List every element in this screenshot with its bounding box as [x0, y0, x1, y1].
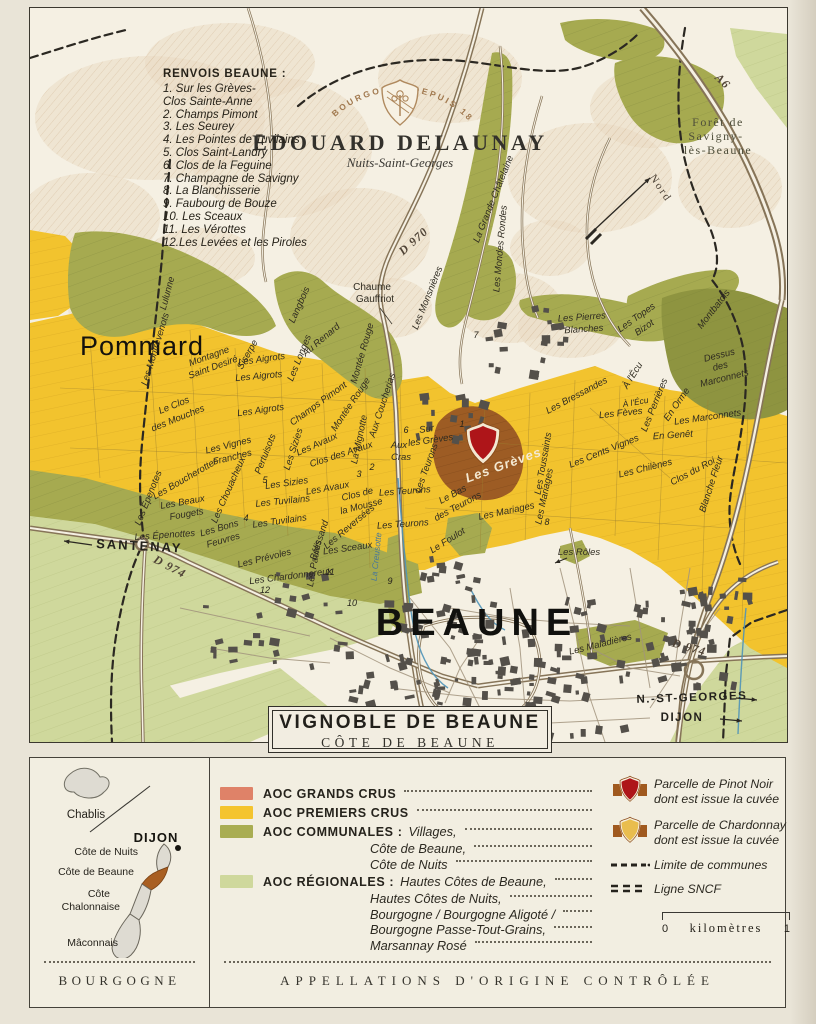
inset-chalonnaise-label: Chalonnaise	[62, 901, 121, 913]
legend-swatch	[220, 875, 253, 888]
map-label: Pommard	[80, 331, 204, 361]
map-label: 9	[387, 576, 392, 586]
renvois-item: 5. Clos Saint-Landry	[163, 147, 363, 160]
renvois-item: 11. Les Vérottes	[163, 224, 363, 237]
inset-cote-de-beaune-label: Côte de Beaune	[58, 866, 134, 878]
legend-sub-row: Côte de Nuits	[220, 857, 598, 873]
maconnais-shape	[112, 914, 140, 958]
brand-crest-icon	[382, 80, 418, 125]
legend-sub-label: Bourgogne Passe-Tout-Grains,	[370, 922, 546, 937]
legend-class-row: AOC PREMIERS CRUS	[220, 803, 598, 822]
map-label: Aux	[390, 440, 409, 451]
map-frame: EN BOURGOGNE DEPUIS 1893 EDOUARD DELAUNA…	[29, 7, 788, 743]
map-label: Forêt de	[692, 115, 744, 129]
renvois-list: RENVOIS BEAUNE : 1. Sur les Grèves-Clos …	[163, 68, 363, 249]
legend-swatch	[220, 825, 253, 838]
renvois-item: Clos Sainte-Anne	[163, 96, 363, 109]
inset-maconnais-label: Mâconnais	[67, 937, 118, 949]
map-label: lès-Beaune	[684, 143, 752, 157]
map-label: 12	[260, 585, 270, 595]
legend-pinot-row: Parcelle de Pinot Noirdont est issue la …	[610, 774, 790, 809]
legend-class-row: AOC COMMUNALES :Villages,	[220, 822, 598, 841]
pinot-crest-icon	[610, 774, 654, 809]
burgundy-inset-map: Chablis DIJON Côte de Nuits Côte de Beau…	[30, 758, 210, 1007]
commune-legend-line: Limite de communes	[654, 858, 767, 873]
legend-box: AOC GRANDS CRUSAOC PREMIERS CRUSAOC COMM…	[210, 758, 785, 1007]
scale-bar-bracket	[662, 912, 790, 920]
scale-unit-label: kilomètres	[690, 921, 763, 936]
legend-sub-label: Marsannay Rosé	[370, 938, 467, 953]
inset-dijon-dot	[175, 845, 181, 851]
legend-sub-row: Bourgogne / Bourgogne Aligoté /	[220, 907, 598, 923]
legend-sub-row: Bourgogne Passe-Tout-Grains,	[220, 922, 598, 938]
legend-sub-row: Hautes Côtes de Nuits,	[220, 891, 598, 907]
renvois-item: 2. Champs Pimont	[163, 109, 363, 122]
legend-class-label: AOC GRANDS CRUS	[263, 787, 396, 801]
legend-sub-label: Villages,	[408, 824, 456, 839]
legend-sub-row: Côte de Beaune,	[220, 841, 598, 857]
legend-sub-row: Marsannay Rosé	[220, 938, 598, 954]
legend-sncf-row: Ligne SNCF	[610, 880, 790, 898]
map-title: VIGNOBLE DE BEAUNE	[269, 712, 551, 734]
pinot-legend-line2: dont est issue la cuvée	[654, 792, 779, 807]
map-label: Gauffriot	[356, 294, 394, 305]
commune-boundary-icon	[610, 856, 654, 874]
map-cartouche: VIGNOBLE DE BEAUNE CÔTE DE BEAUNE	[268, 706, 552, 753]
wine-map-poster: EN BOURGOGNE DEPUIS 1893 EDOUARD DELAUNA…	[0, 0, 816, 1024]
legend-chardonnay-row: Parcelle de Chardonnaydont est issue la …	[610, 815, 790, 850]
sncf-line-icon	[610, 880, 654, 898]
map-label: 2	[368, 462, 374, 472]
map-label: Les Rôles	[558, 547, 600, 558]
chardonnay-legend-line1: Parcelle de Chardonnay	[654, 818, 786, 833]
sncf-legend-line: Ligne SNCF	[654, 882, 721, 897]
map-subtitle: CÔTE DE BEAUNE	[269, 735, 551, 751]
scale-end: 1	[784, 923, 790, 935]
legend-sub-label: Hautes Côtes de Nuits,	[370, 891, 502, 906]
inset-dotted-rule	[44, 961, 195, 963]
map-label: 4	[243, 513, 248, 523]
map-label: 11	[325, 567, 334, 577]
map-label: 3	[356, 469, 361, 479]
inset-map-svg: Chablis DIJON Côte de Nuits Côte de Beau…	[30, 758, 208, 958]
map-label: Savigny-	[688, 129, 743, 143]
bourgogne-label: BOURGOGNE	[30, 973, 209, 989]
renvois-title: RENVOIS BEAUNE :	[163, 68, 363, 80]
scale-bar: 0 kilomètres 1	[662, 912, 790, 936]
inset-chablis-label: Chablis	[67, 809, 106, 821]
renvois-item: 3. Les Seurey	[163, 121, 363, 134]
beaune-map: EN BOURGOGNE DEPUIS 1893 EDOUARD DELAUNA…	[30, 8, 787, 742]
legend-class-label: AOC PREMIERS CRUS	[263, 806, 409, 820]
legend-swatch	[220, 806, 253, 819]
legend-sub-label: Hautes Côtes de Beaune,	[400, 874, 547, 889]
inset-dijon-label: DIJON	[134, 830, 179, 845]
renvois-item: 12.Les Levées et les Piroles	[163, 237, 363, 250]
legend-swatch	[220, 787, 253, 800]
renvois-item: 6. Clos de la Feguine	[163, 160, 363, 173]
renvois-item: 1. Sur les Grèves-	[163, 83, 363, 96]
inset-cote-de-nuits-label: Côte de Nuits	[74, 846, 138, 858]
map-label: DIJON	[661, 712, 704, 724]
map-label: Cras	[391, 452, 411, 463]
cote-chalonnaise-shape	[130, 884, 151, 920]
page-edge-shadow	[790, 0, 816, 1024]
legend-commune-row: Limite de communes	[610, 856, 790, 874]
legend-dotted-rule	[224, 961, 771, 963]
map-label: BEAUNE	[376, 602, 578, 644]
cote-de-nuits-shape	[157, 844, 171, 871]
symbol-legend-list: Parcelle de Pinot Noirdont est issue la …	[610, 774, 790, 936]
legend-class-row: AOC GRANDS CRUS	[220, 784, 598, 803]
map-label: 10	[347, 598, 357, 608]
renvois-item: 7. Champagne de Savigny	[163, 173, 363, 186]
chardonnay-crest-icon	[610, 815, 654, 850]
aoc-legend-list: AOC GRANDS CRUSAOC PREMIERS CRUSAOC COMM…	[220, 784, 598, 953]
legend-sub-label: Côte de Beaune,	[370, 841, 466, 856]
map-label: 6	[403, 425, 408, 435]
map-label: Chaume	[353, 282, 391, 293]
legend-sub-label: Côte de Nuits	[370, 857, 448, 872]
map-label: 8	[544, 517, 549, 527]
renvois-item: 8. La Blanchisserie	[163, 185, 363, 198]
map-label: 1	[459, 419, 464, 429]
legend-class-row: AOC RÉGIONALES :Hautes Côtes de Beaune,	[220, 872, 598, 891]
aoc-footer-label: APPELLATIONS D'ORIGINE CONTRÔLÉE	[210, 973, 785, 989]
inset-cote-label: Côte	[88, 888, 110, 900]
legend-class-label: AOC COMMUNALES :	[263, 825, 402, 839]
renvois-item: 4. Les Pointes de Tuvilains	[163, 134, 363, 147]
pinot-legend-line1: Parcelle de Pinot Noir	[654, 777, 779, 792]
chardonnay-legend-line2: dont est issue la cuvée	[654, 833, 786, 848]
legend-class-label: AOC RÉGIONALES :	[263, 875, 394, 889]
renvois-item: 10. Les Sceaux	[163, 211, 363, 224]
renvois-item: 9. Faubourg de Bouze	[163, 198, 363, 211]
chablis-region-shape	[64, 768, 109, 798]
legend-panel: Chablis DIJON Côte de Nuits Côte de Beau…	[29, 757, 786, 1008]
scale-start: 0	[662, 923, 668, 935]
legend-sub-label: Bourgogne / Bourgogne Aligoté /	[370, 907, 555, 922]
